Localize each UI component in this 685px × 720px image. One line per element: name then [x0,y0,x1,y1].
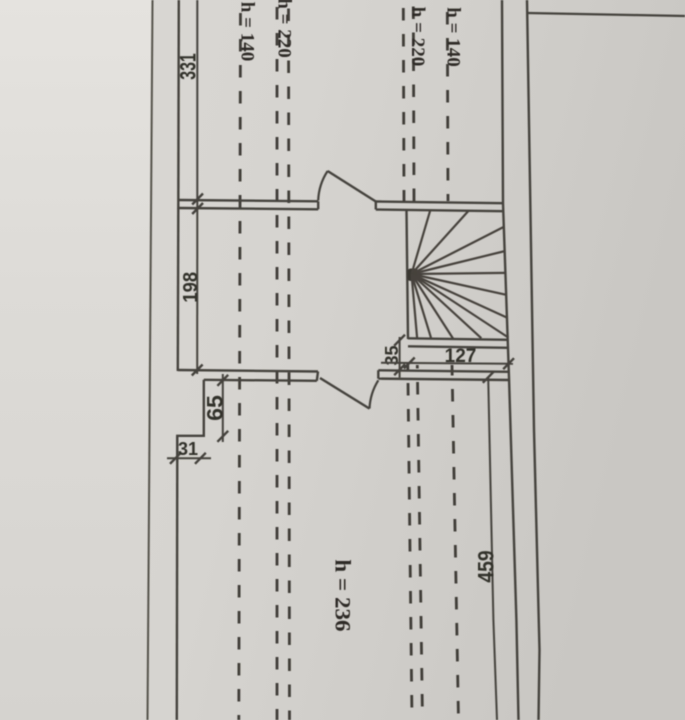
svg-text:h = 140: h = 140 [236,2,257,61]
svg-text:h = 236: h = 236 [330,559,354,631]
svg-text:31: 31 [178,439,198,459]
svg-text:198: 198 [180,272,202,303]
svg-text:h = 220: h = 220 [407,7,428,66]
svg-text:127: 127 [445,346,477,367]
svg-text:331: 331 [177,53,201,80]
svg-text:h = 140: h = 140 [443,7,464,66]
svg-text:65: 65 [203,395,227,421]
svg-text:h = 220: h = 220 [273,0,294,58]
svg-text:459: 459 [474,550,498,582]
